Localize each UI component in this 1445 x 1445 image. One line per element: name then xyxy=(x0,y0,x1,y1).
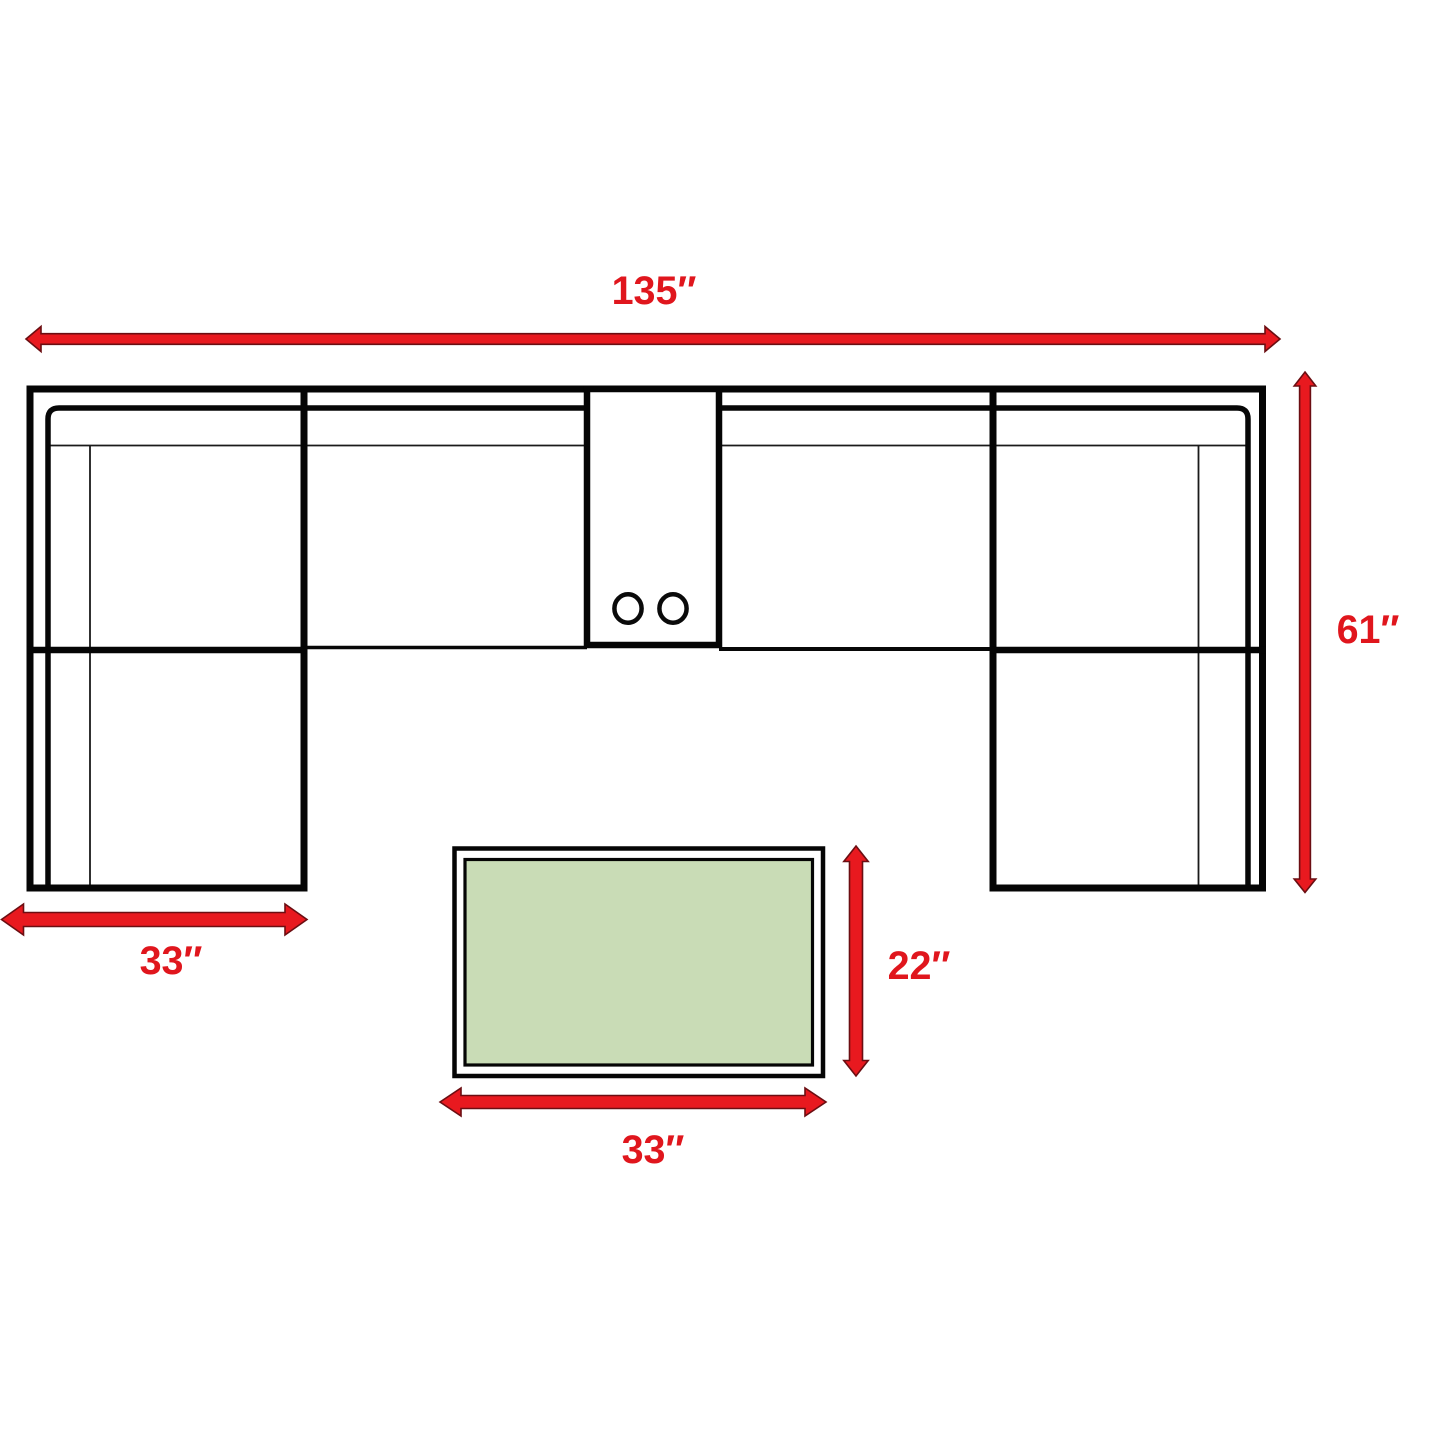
svg-text:33″: 33″ xyxy=(622,1128,685,1172)
svg-text:135″: 135″ xyxy=(612,269,697,313)
svg-text:22″: 22″ xyxy=(888,944,951,988)
svg-text:61″: 61″ xyxy=(1337,608,1400,652)
svg-text:33″: 33″ xyxy=(140,939,203,983)
